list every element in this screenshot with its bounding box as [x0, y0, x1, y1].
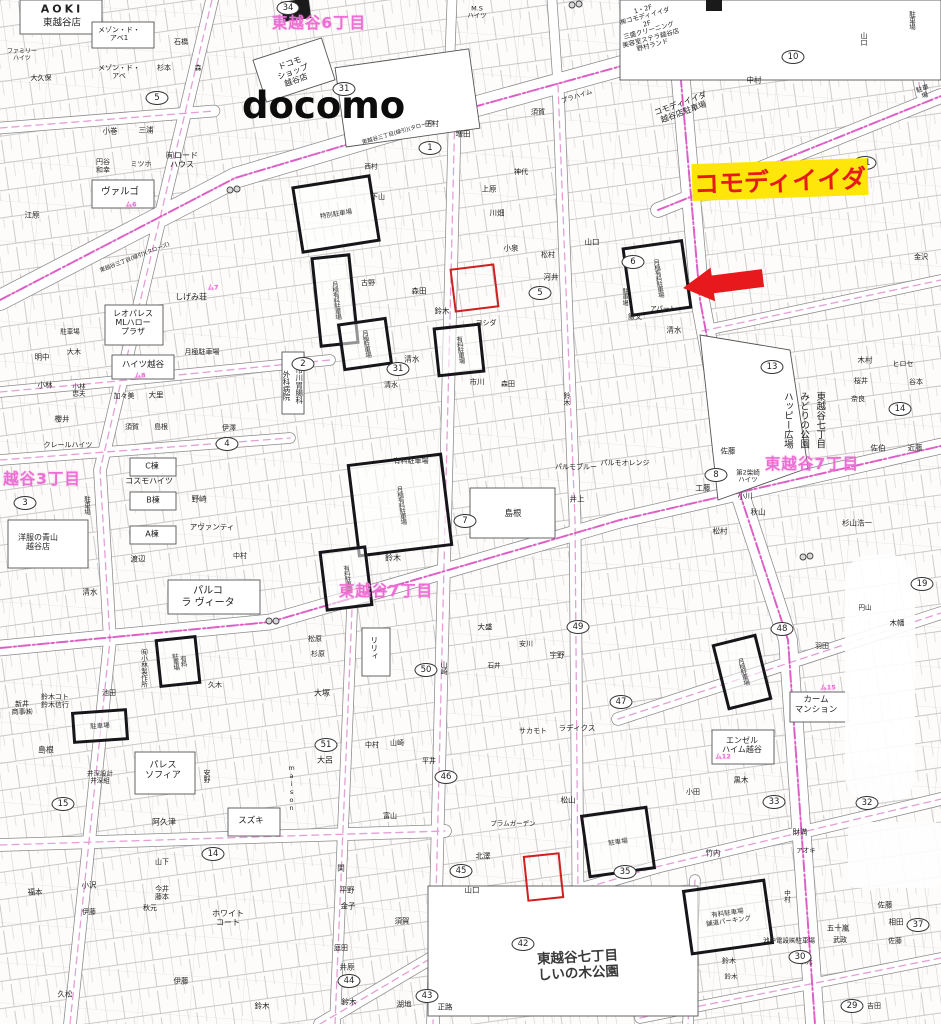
map-label: 杉山浩一 — [842, 520, 872, 529]
circled-block-number: 19 — [911, 577, 934, 591]
circled-block-number: 10 — [782, 50, 805, 64]
circled-block-number: 11 — [854, 156, 877, 170]
map-label: 駐車場 — [619, 288, 629, 306]
map-label: アオキ — [796, 847, 816, 854]
map-label: ム6 — [125, 201, 136, 208]
map-label: 松村 — [713, 528, 728, 537]
map-label: 下山 — [371, 193, 385, 201]
map-label: 駐車場 — [60, 328, 80, 335]
map-label: 福本 — [28, 889, 43, 898]
map-label: 杉原 — [311, 650, 325, 658]
map-label: 古野 — [361, 279, 375, 287]
map-label: 山崎 — [390, 739, 404, 747]
map-label: 秋元 — [143, 904, 157, 912]
map-label: 円谷 和幸 — [96, 158, 110, 174]
map-label: 須賀 — [531, 108, 545, 116]
map-label: 飯又 — [628, 313, 642, 321]
map-label: 伊澤 — [222, 424, 236, 432]
map-label: パルモブルー — [555, 463, 597, 471]
circled-block-number: 37 — [907, 918, 930, 932]
map-label: メゾン・ド・ アベ — [98, 64, 140, 80]
map-label: 東越谷七丁目 みどりの公園 ハッピー広場 — [779, 392, 827, 449]
map-label: 田村 — [425, 120, 439, 128]
map-label: 山口 — [465, 887, 480, 896]
map-label: しげみ荘 — [175, 292, 207, 301]
circled-block-number: 47 — [610, 695, 633, 709]
map-label: 上原 — [482, 186, 497, 195]
map-label: 森田 — [501, 380, 515, 388]
map-label: 小沢 — [82, 882, 97, 891]
map-label: 清水 — [384, 381, 398, 389]
circled-block-number: 46 — [435, 770, 458, 784]
circled-block-number: 8 — [705, 468, 728, 482]
map-label: 佐伯 — [871, 445, 886, 454]
map-label: 円山 — [859, 604, 872, 611]
map-label: 鈴木 — [342, 999, 357, 1008]
map-label: 須賀 — [125, 423, 139, 431]
circled-block-number: 4 — [216, 437, 239, 451]
map-label: M.S ハイツ — [467, 6, 486, 21]
map-label: 河井 — [544, 274, 559, 283]
map-label: 武政 — [833, 936, 847, 944]
map-label: 西村 — [365, 163, 378, 170]
map-label: 大呂 — [317, 755, 333, 764]
circled-block-number: 29 — [841, 999, 864, 1013]
map-label-layer: AOKI東越谷店ファミリー ハイツ大久保メゾン・ド・ アベ1石橋メゾン・ド・ ア… — [0, 0, 941, 1024]
map-label: コモディイイダ 越谷店駐車場 — [653, 90, 711, 126]
map-label: 井原 — [340, 964, 355, 973]
map-label: 五十嵐 — [827, 925, 850, 934]
circled-block-number: 7 — [454, 514, 477, 528]
map-label: 鈴木 — [435, 308, 450, 317]
map-label: ヴァルゴ — [101, 188, 139, 199]
map-label: 山下 — [155, 858, 169, 866]
map-label: 伊藤 — [174, 978, 189, 987]
map-label: A棟 — [145, 529, 158, 538]
map-label: 島根 — [504, 510, 521, 520]
map-label: 小巻 — [103, 128, 118, 137]
map-label: ㈲小林製作所 — [137, 649, 148, 688]
map-label: 増田 — [456, 131, 471, 140]
map-label: 大久保 — [31, 74, 52, 82]
map-label: カーム マンション — [795, 696, 838, 716]
map-label: 島根 — [38, 745, 54, 754]
circled-block-number: 6 — [622, 255, 645, 269]
map-label: メゾン・ド・ アベ1 — [98, 26, 140, 42]
map-label: 鈴木 — [385, 553, 401, 562]
map-label: 桜井 — [854, 377, 868, 385]
circled-block-number: 31 — [387, 362, 410, 376]
map-label: パレス ソフィア — [145, 761, 181, 782]
map-label: 渡辺 — [131, 556, 146, 565]
map-label: 小林 忠夫 — [73, 384, 86, 399]
map-label: ム15 — [820, 684, 836, 691]
map-label: 阿久津 — [152, 817, 176, 826]
map-label: 久松 — [58, 991, 73, 1000]
map-label: AOKI — [41, 4, 83, 17]
circled-block-number: 50 — [415, 663, 438, 677]
map-label: 川畑 — [490, 210, 505, 219]
map-label: 小川 — [738, 493, 753, 502]
map-label: 市川 — [470, 379, 485, 388]
map-label: 池田 — [102, 689, 116, 697]
map-label: 木幡 — [890, 620, 905, 629]
circled-block-number: 33 — [763, 795, 786, 809]
map-label: ホワイト コート — [212, 909, 244, 927]
map-label: 松村 — [541, 251, 555, 259]
district-label: 東越谷6丁目 — [272, 11, 366, 33]
district-label: 東越谷7丁目 — [339, 579, 433, 601]
map-label: 大盛 — [478, 624, 493, 633]
map-label: 木村 — [858, 357, 873, 366]
map-label: 島根 — [154, 423, 168, 431]
map-label: 石井 — [488, 662, 501, 669]
map-label: 中村 — [747, 77, 762, 86]
map-label: ミツホ — [131, 160, 152, 168]
map-label: 佐藤 — [721, 448, 736, 457]
circled-block-number: 44 — [338, 974, 361, 988]
map-label: ヒロセ — [893, 360, 914, 368]
map-label: 洋服の青山 越谷店 — [18, 533, 58, 551]
map-label: B棟 — [146, 495, 160, 504]
map-label: アパート — [650, 305, 676, 312]
map-label: 平野 — [340, 887, 355, 896]
map-label: ラディクス — [559, 725, 596, 734]
map-label: 秋山 — [751, 509, 766, 518]
map-label: 鈴木コト 鈴木信行 — [41, 693, 69, 709]
circled-block-number: 5 — [529, 286, 552, 300]
map-label: 山口 — [585, 239, 600, 248]
map-label: 佐藤 — [888, 937, 902, 945]
map-label: 鈴木 — [255, 1003, 270, 1012]
map-label: 櫻井 — [55, 416, 70, 425]
map-label: 須賀 — [395, 918, 410, 927]
map-label: 駐車場 — [80, 495, 91, 515]
map-label: 松原 — [308, 635, 322, 643]
map-label: 工藤 — [696, 485, 711, 494]
map-label: 竹内 — [706, 850, 721, 859]
map-label: ハイツ越谷 — [122, 361, 164, 371]
circled-block-number: 35 — [614, 865, 637, 879]
circled-block-number: 5 — [146, 91, 169, 105]
map-label: 有料駐車場 — [394, 457, 429, 465]
map-label: 大里 — [149, 392, 164, 401]
map-label: 第2柴崎 ハイツ — [736, 470, 760, 485]
circled-block-number: 43 — [416, 989, 439, 1003]
map-label: 清水 — [83, 589, 98, 598]
map-label: リリィ — [367, 636, 381, 660]
map-label: スズキ — [238, 817, 264, 827]
map-label: 湖地 — [397, 1001, 412, 1010]
map-label: 駐車場 — [905, 10, 916, 30]
map-label: レオパレス MLハロー プラザ — [113, 309, 153, 337]
circled-block-number: 45 — [450, 864, 473, 878]
map-label: 安川 — [519, 640, 533, 648]
map-label: 池中電設㈱駐車場 — [763, 937, 815, 944]
circled-block-number: 14 — [202, 847, 225, 861]
map-label: 江原 — [25, 212, 40, 221]
map-label: 大塚 — [314, 688, 330, 697]
map-label: 鈴木 — [722, 957, 736, 965]
map-label: コスモハイツ — [125, 476, 173, 485]
map-label: C棟 — [145, 461, 159, 470]
circled-block-number: 30 — [789, 950, 812, 964]
map-label: 大木 — [67, 348, 81, 356]
map-label: 北澤 — [476, 853, 491, 862]
map-label: 金沢 — [914, 253, 928, 261]
map-label: 久木 — [208, 681, 222, 689]
circled-block-number: 1 — [419, 141, 442, 155]
map-label: 野崎 — [192, 496, 207, 505]
map-label: 正路 — [438, 1004, 453, 1013]
map-label: 今井 藤本 — [155, 885, 169, 901]
map-label: 東越谷七丁目 しいの木公園 — [537, 948, 620, 983]
map-label: 山崎 — [437, 661, 449, 675]
circled-block-number: 51 — [315, 738, 338, 752]
map-label: 清水 — [405, 356, 420, 365]
map-label: 中村 — [365, 741, 379, 749]
map-label: 井深設計 井深組 — [87, 771, 113, 786]
map-label: 井上 — [570, 496, 585, 505]
circled-block-number: 14 — [889, 402, 912, 416]
map-label: maison — [285, 764, 296, 812]
map-label: 明中 — [35, 354, 50, 363]
map-label: 佐藤 — [878, 902, 893, 911]
map-label: 小泉 — [504, 245, 519, 254]
map-label: 富山 — [383, 812, 397, 820]
map-label: 中村 — [780, 890, 791, 903]
map-label: 森田 — [412, 288, 427, 297]
map-label: 月極駐車場 — [185, 348, 220, 356]
map-label: ㈲ロード ハウス — [166, 151, 198, 169]
district-label: 越谷3丁目 — [3, 467, 81, 489]
map-label: ドコモ ショップ 越谷店 — [273, 54, 312, 91]
map-label: 加々美 — [114, 392, 135, 400]
map-label: 宇野 — [550, 652, 565, 661]
map-label: 清水 — [667, 327, 682, 336]
map-label: 相田 — [889, 919, 904, 928]
map-label: アヴァンティ — [190, 524, 235, 533]
map-label: 石橋 — [174, 38, 188, 46]
map-label: ヨシダ — [476, 319, 497, 327]
map-label: ム8 — [134, 372, 145, 379]
map-label: 松山 — [561, 797, 576, 806]
map-label: 鈴木 — [725, 973, 738, 980]
map-label: 鈴木 — [560, 392, 572, 406]
map-label: 伊藤 — [82, 908, 96, 916]
map-label: 杉本 — [157, 64, 171, 72]
map-label: 近藤 — [908, 445, 923, 454]
map-label: 金子 — [341, 903, 356, 912]
map-label: 神代 — [514, 168, 528, 176]
circled-block-number: 42 — [512, 937, 535, 951]
map-label: 小田 — [686, 788, 700, 796]
map-label: プラハイム — [561, 88, 594, 105]
map-label: 関 — [337, 865, 345, 874]
map-label: パルモオレンジ — [601, 459, 650, 467]
map-label: 庭田 — [334, 944, 348, 952]
map-label: 三浦 — [139, 127, 154, 136]
circled-block-number: 48 — [771, 622, 794, 636]
map-label: 奈良 — [851, 395, 865, 403]
circled-block-number: 15 — [52, 797, 75, 811]
circled-block-number: 31 — [333, 82, 356, 96]
map-label: パルコ ラ ヴィータ — [181, 586, 234, 609]
map-label: 安野 — [200, 769, 212, 783]
map-label: 平井 — [422, 757, 436, 765]
map-label: 新井 商事㈱ — [12, 700, 33, 716]
map-label: 財満 — [793, 829, 808, 838]
map-label: サカモト — [519, 727, 547, 735]
circled-block-number: 49 — [567, 620, 590, 634]
map-label: 1・2F ㈱コモディイイダ 2F 三盛クリーニング 美容室ステラ越谷店 野村ラン… — [614, 0, 682, 57]
circled-block-number: 2 — [292, 357, 315, 371]
map-label: 谷本 — [909, 378, 923, 386]
map-label: 駐車場 — [913, 83, 934, 103]
circled-block-number: 13 — [761, 360, 784, 374]
circled-block-number: 3 — [14, 496, 37, 510]
map-label: 中村 — [233, 552, 247, 560]
map-label: 羽田 — [815, 642, 829, 650]
map-label: ム12 — [715, 753, 731, 760]
map-label: クレールハイツ — [44, 441, 93, 449]
map-label: ム7 — [207, 284, 218, 291]
map-canvas: 特別駐車場月極有料駐車場月極駐車場有料駐車場月極有料駐車場有料駐車場月極有料駐車… — [0, 0, 941, 1024]
map-label: 吉田 — [867, 1002, 881, 1010]
map-label: 山口 — [857, 32, 869, 46]
district-label: 東越谷7丁目 — [765, 452, 859, 474]
map-label: 小林 — [38, 382, 53, 391]
map-label: 黒木 — [734, 777, 749, 786]
circled-block-number: 32 — [856, 796, 879, 810]
map-label: 東越谷三丁目(線引)(タローズ) — [99, 242, 171, 275]
map-label: プラムガーデン — [490, 820, 535, 827]
map-label: 東越谷店 — [43, 19, 81, 30]
map-label: ファミリー ハイツ — [7, 49, 37, 63]
map-label: 森 — [195, 64, 202, 72]
map-label: 市川胃腸科 外科病院 — [279, 366, 305, 404]
